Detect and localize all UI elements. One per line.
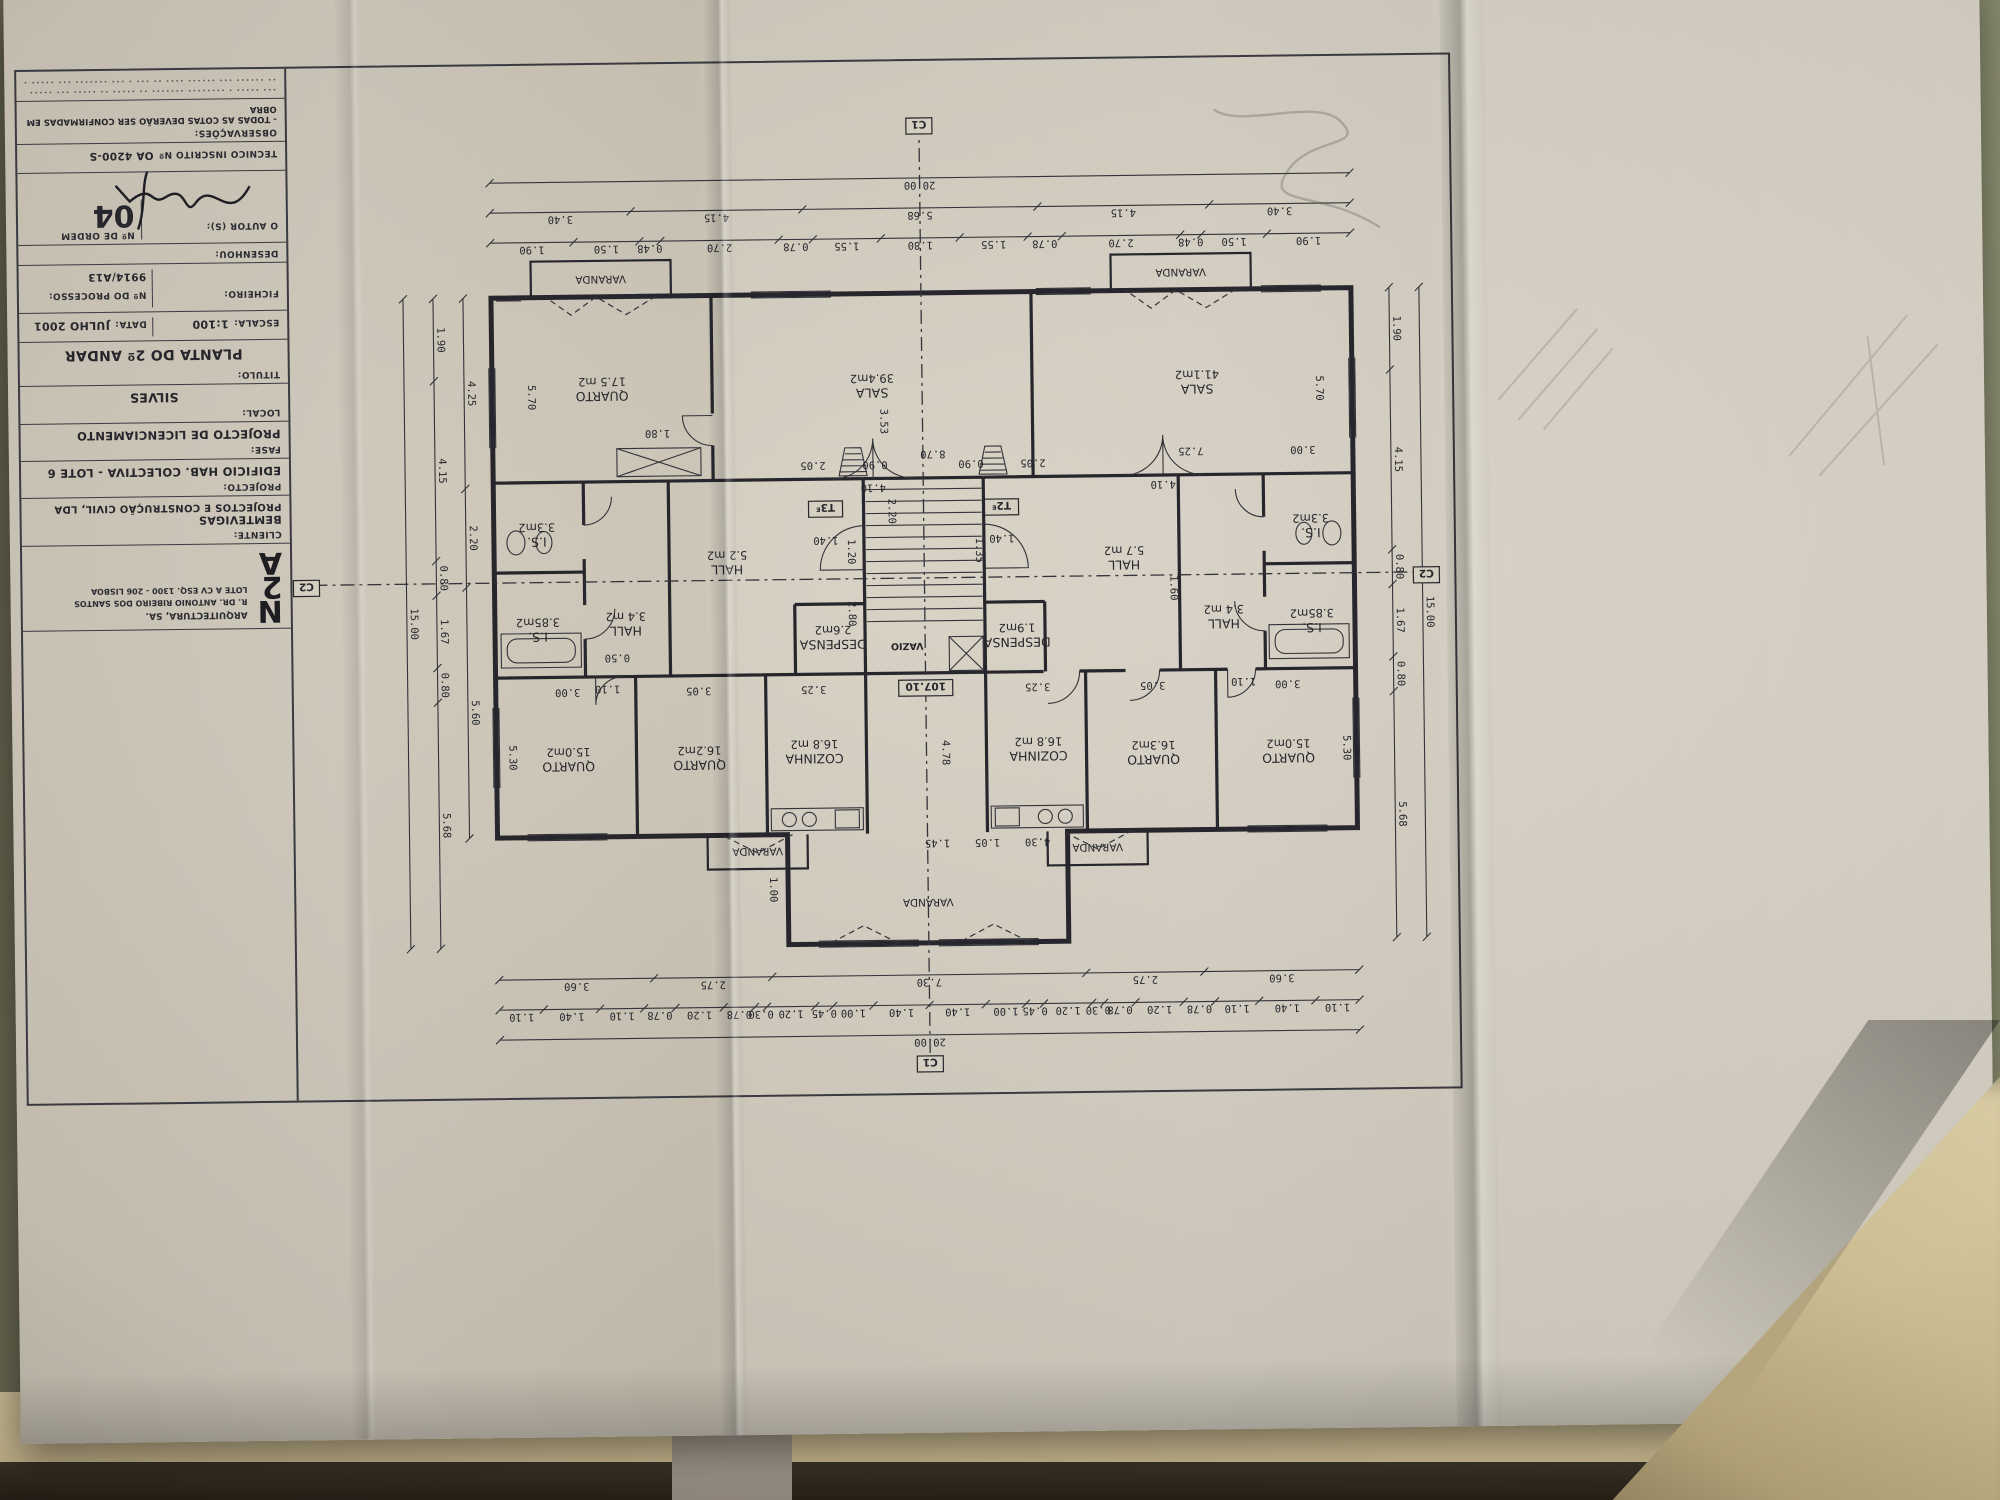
titleblock-row-observacoes: OBSERVAÇÕES: - TODAS AS COTAS DEVERÃO SE… [17, 99, 286, 145]
dim-label: 3.25 [801, 683, 826, 695]
dim-label: 2.80 [846, 601, 858, 626]
chain-dim: 7.30 [917, 976, 942, 988]
chain-dim: 3.60 [564, 980, 589, 992]
pencil-scribble [1188, 87, 1410, 250]
chain-dim: 1.90 [1390, 316, 1402, 341]
author-signature [107, 166, 258, 238]
chain-dim: 0.48 [637, 242, 662, 254]
varanda-label: VARANDA [902, 896, 954, 909]
chain-dim: 3.60 [1269, 971, 1294, 983]
floor-plan-area: SALA41.1m2QUARTO15.0m2QUARTO16.3m2COZINH… [286, 54, 1461, 1100]
chain-dim: 1.55 [834, 240, 859, 252]
chain-dim: 1.00 [993, 1005, 1018, 1017]
chain-dim: 1.20 [778, 1007, 803, 1019]
chain-dim: 0.80 [439, 673, 451, 698]
titleblock-row-autor: O AUTOR (S): Nº DE ORDEM 04 [17, 171, 286, 246]
chain-dim: 1.20 [1147, 1003, 1172, 1015]
dim-label: 1.45 [925, 837, 950, 849]
dim-label: 4.30 [1025, 835, 1050, 847]
chain-dim: 0.45 [1022, 1004, 1047, 1016]
stair-tread [866, 584, 982, 585]
room-name: QUARTO [1262, 750, 1315, 766]
room-name: QUARTO [1127, 752, 1180, 768]
room-area: 16.8 m2 [790, 737, 838, 752]
dim-label: 1.00 [767, 877, 779, 902]
room-name: QUARTO [673, 757, 726, 773]
stair-tread [866, 512, 982, 513]
dim-label: 2.20 [885, 499, 897, 524]
dim-label: 7.25 [1178, 444, 1203, 456]
room-name: I.S. [528, 630, 548, 645]
room-area: 15.0m2 [1266, 736, 1310, 751]
dim-label: 1.80 [645, 427, 670, 439]
room-area: 1.9m2 [999, 621, 1036, 635]
chain-dim: 2.70 [707, 241, 732, 253]
chain-dim: 1.20 [687, 1009, 712, 1021]
room-name: I.S. [527, 535, 547, 550]
n2a-logo: N 2 A [257, 550, 283, 622]
pencil-marks [1487, 274, 1970, 540]
dim-label: 1.40 [813, 534, 838, 546]
dim-label: 4.78 [939, 740, 951, 765]
chain-dim: 1.10 [509, 1011, 534, 1023]
drawing-paper: SALA41.1m2QUARTO15.0m2QUARTO16.3m2COZINH… [3, 0, 1997, 1444]
room-name: I.S. [1302, 620, 1322, 635]
room-area: 5.2 m2 [707, 548, 748, 562]
varanda-label: VARANDA [574, 273, 626, 286]
dim-label: 5.30 [506, 745, 518, 770]
chain-dim: 1.10 [1224, 1002, 1249, 1014]
dim-label: 2.05 [1020, 456, 1045, 468]
varanda-label: VARANDA [1071, 841, 1123, 854]
chain-dim: 1.40 [889, 1006, 914, 1018]
chain-dim: 2.75 [701, 978, 726, 990]
dim-label: 3.05 [686, 685, 711, 697]
titleblock-row-cliente: CLIENTE: BEMTEVIGAS PROJECTOS E CONSTRUÇ… [21, 496, 290, 547]
chain-dim: 4.15 [436, 458, 448, 483]
dim-label: 3.00 [555, 686, 580, 698]
dim-label: 5.70 [1313, 375, 1325, 400]
stair-tread [867, 608, 983, 609]
dim-label: 3.53 [877, 409, 889, 434]
title-block-empty-space [23, 629, 297, 1104]
chain-dim: 1.55 [981, 238, 1006, 250]
titleblock-row-ficheiro-processo: FICHEIRO: Nº DO PROCESSO: 9914/A13 [19, 263, 288, 314]
dim-label: 3.00 [1275, 677, 1300, 689]
titleblock-fineprint: ∙∙∙ ∙∙∙∙∙ ∙ ∙∙∙∙∙∙∙∙ ∙∙∙∙∙∙∙ ∙∙ ∙∙∙∙∙ ∙∙… [16, 69, 284, 103]
chain-dim: 1.67 [438, 619, 450, 644]
chain-dim: 1.10 [609, 1009, 634, 1021]
chain-dim: 4.15 [1392, 447, 1404, 472]
unit-entrance-T3-text: T3ᴱ [815, 501, 835, 513]
chain-dim: 1.40 [559, 1010, 584, 1022]
room-area: 41.1m2 [1175, 367, 1219, 382]
dim-label: 5.70 [525, 385, 537, 410]
section-marker-c1-text: C1 [911, 118, 926, 130]
chain-dim: 1.80 [908, 239, 933, 251]
chain-dim: 1.10 [1325, 1001, 1350, 1013]
room-area: 3.85m2 [1290, 606, 1334, 621]
photo-of-floor-plan: SALA41.1m2QUARTO15.0m2QUARTO16.3m2COZINH… [0, 0, 2000, 1500]
chain-dim: 0.78 [727, 1008, 752, 1020]
titleblock-row-projecto: PROJECTO: EDIFICIO HAB. COLECTIVA - LOTE… [21, 459, 289, 499]
dim-label: 0.90 [862, 458, 887, 470]
chain-dim: 2.20 [467, 525, 479, 550]
chain-dim: 15.00 [408, 608, 420, 640]
room-name: COZINHA [1009, 748, 1068, 764]
chain-dim: 2.70 [1108, 236, 1133, 248]
architect-address: ARQUITECTURA, SA. R. DR. ANTONIO RIBEIRO… [74, 583, 248, 625]
chain-dim: 1.40 [1275, 1001, 1300, 1013]
dim-label: 4.10 [861, 481, 886, 493]
chain-dim: 5.68 [440, 813, 452, 838]
dim-label: 1.05 [975, 836, 1000, 848]
titleblock-row-fase: FASE: PROJECTO DE LICENCIAMENTO [20, 422, 288, 462]
stair-tread [866, 572, 982, 573]
unit-entrance-T2-text: T2ᴱ [991, 499, 1011, 511]
chain-dim: 0.80 [1393, 554, 1405, 579]
room-name: DESPENSA [799, 637, 867, 653]
chain-dim: 5.68 [1396, 801, 1408, 826]
dim-label: 1.60 [1167, 575, 1179, 600]
dim-label: 8.70 [920, 448, 945, 460]
chain-dim: 4.15 [704, 211, 729, 223]
chain-dim: 20.00 [914, 1036, 946, 1048]
room-name: HALL [1208, 616, 1240, 631]
chain-dim: 0.80 [437, 566, 449, 591]
stair-tread [866, 536, 982, 537]
chain-dim: 4.15 [1111, 206, 1136, 218]
titleblock-row-titulo: TITULO: PLANTA DO 2º ANDAR [19, 340, 288, 387]
chain-dim: 1.67 [1394, 607, 1406, 632]
dim-label: 3.00 [1290, 443, 1315, 455]
stair-tread [866, 548, 982, 549]
dim-label: 2.05 [800, 459, 825, 471]
room-area: 3.4 m2 [1203, 602, 1244, 616]
chain-dim: 0.78 [783, 240, 808, 252]
stair-tread [866, 560, 982, 561]
chain-dim: 2.75 [1133, 973, 1158, 985]
vazio-label: VAZIO [891, 640, 924, 651]
chain-dim: 0.78 [1187, 1002, 1212, 1014]
room-area: 39.4m2 [850, 371, 894, 386]
room-name: HALL [610, 623, 642, 638]
stair-tread [865, 500, 981, 501]
section-marker-c2-text: C2 [1419, 567, 1434, 579]
dim-label: 3.25 [1025, 680, 1050, 692]
room-area: 5.7 m2 [1104, 543, 1145, 557]
stair-tread [866, 524, 982, 525]
room-name: HALL [711, 562, 743, 577]
chain-dim: 4.25 [465, 381, 477, 406]
chain-dim: 1.90 [434, 327, 446, 352]
room-name: I.S. [1301, 525, 1321, 540]
dim-label: 0.90 [958, 457, 983, 469]
chain-dim: 5.60 [469, 700, 481, 725]
dim-label: 4.10 [1151, 478, 1176, 490]
room-name: SALA [1180, 381, 1213, 396]
room-name: QUARTO [576, 389, 629, 405]
sheet-content: SALA41.1m2QUARTO15.0m2QUARTO16.3m2COZINH… [14, 52, 1463, 1105]
dim-label: 1.10 [595, 683, 620, 695]
chain-dim: 0.45 [812, 1007, 837, 1019]
stair-tread [867, 596, 983, 597]
room-name: COZINHA [785, 751, 844, 767]
room-name: DESPENSA [983, 634, 1051, 650]
room-area: 16.3m2 [1131, 738, 1175, 753]
chain-dim: 15.00 [1424, 596, 1436, 628]
chain-dim: 3.40 [548, 213, 573, 225]
dim-label: 3.05 [1140, 679, 1165, 691]
room-area: 3.3m2 [518, 520, 555, 534]
varanda-label: VARANDA [1154, 265, 1206, 278]
room-name: SALA [855, 385, 888, 400]
titleblock-row-desenhou: DESENHOU: [18, 243, 286, 266]
room-area: 16.8 m2 [1014, 734, 1062, 749]
titleblock-row-escala-data: ESCALA: 1:100 DATA: JULHO 2001 [19, 311, 287, 343]
title-block: N 2 A ARQUITECTURA, SA. R. DR. ANTONIO R… [16, 69, 299, 1104]
room-area: 3.3m2 [1292, 511, 1329, 525]
architect-logo-row: N 2 A ARQUITECTURA, SA. R. DR. ANTONIO R… [22, 544, 291, 632]
section-marker-c2-text: C2 [299, 580, 314, 592]
dim-label: 0.50 [605, 652, 630, 664]
level-marker-text: 107.10 [905, 680, 946, 692]
chain-dim: 1.20 [1055, 1004, 1080, 1016]
room-area: 16.2m2 [677, 743, 721, 758]
chain-dim: 0.78 [1107, 1003, 1132, 1015]
stairs [303, 129, 1440, 1061]
titleblock-row-local: LOCAL: SILVES [20, 384, 288, 425]
chain-dim: 0.78 [1032, 237, 1057, 249]
room-area: 3.85m2 [516, 615, 560, 630]
room-area: 15.0m2 [546, 745, 590, 760]
chain-dim: 1.00 [841, 1007, 866, 1019]
section-marker-c1-text: C1 [923, 1056, 938, 1068]
chain-dim: 1.40 [945, 1005, 970, 1017]
drawing-frame: SALA41.1m2QUARTO15.0m2QUARTO16.3m2COZINH… [14, 52, 1463, 1105]
chain-dim: 1.50 [594, 243, 619, 255]
chain-dim: 0.78 [647, 1009, 672, 1021]
dim-label: 1.35 [973, 538, 985, 563]
dim-label: 1.40 [989, 532, 1014, 544]
chain-dim: 20.00 [904, 179, 936, 191]
chain-dim: 5.68 [907, 209, 932, 221]
stair-tread [867, 620, 983, 621]
room-name: HALL [1108, 557, 1140, 572]
dim-label: 1.20 [845, 539, 857, 564]
dimension-line [463, 299, 470, 839]
dim-label: 5.30 [1340, 735, 1352, 760]
room-name: QUARTO [542, 759, 595, 775]
chain-dim: 1.90 [519, 244, 544, 256]
dim-label: 1.10 [1231, 675, 1256, 687]
room-area: 17.5 m2 [578, 375, 626, 390]
chain-dim: 0.80 [1394, 661, 1406, 686]
room-area: 3.4 m2 [606, 609, 647, 623]
varanda-label: VARANDA [731, 845, 783, 858]
titleblock-row-tecnico: TECNICO INSCRITO Nº OA 4200-S [17, 142, 285, 174]
